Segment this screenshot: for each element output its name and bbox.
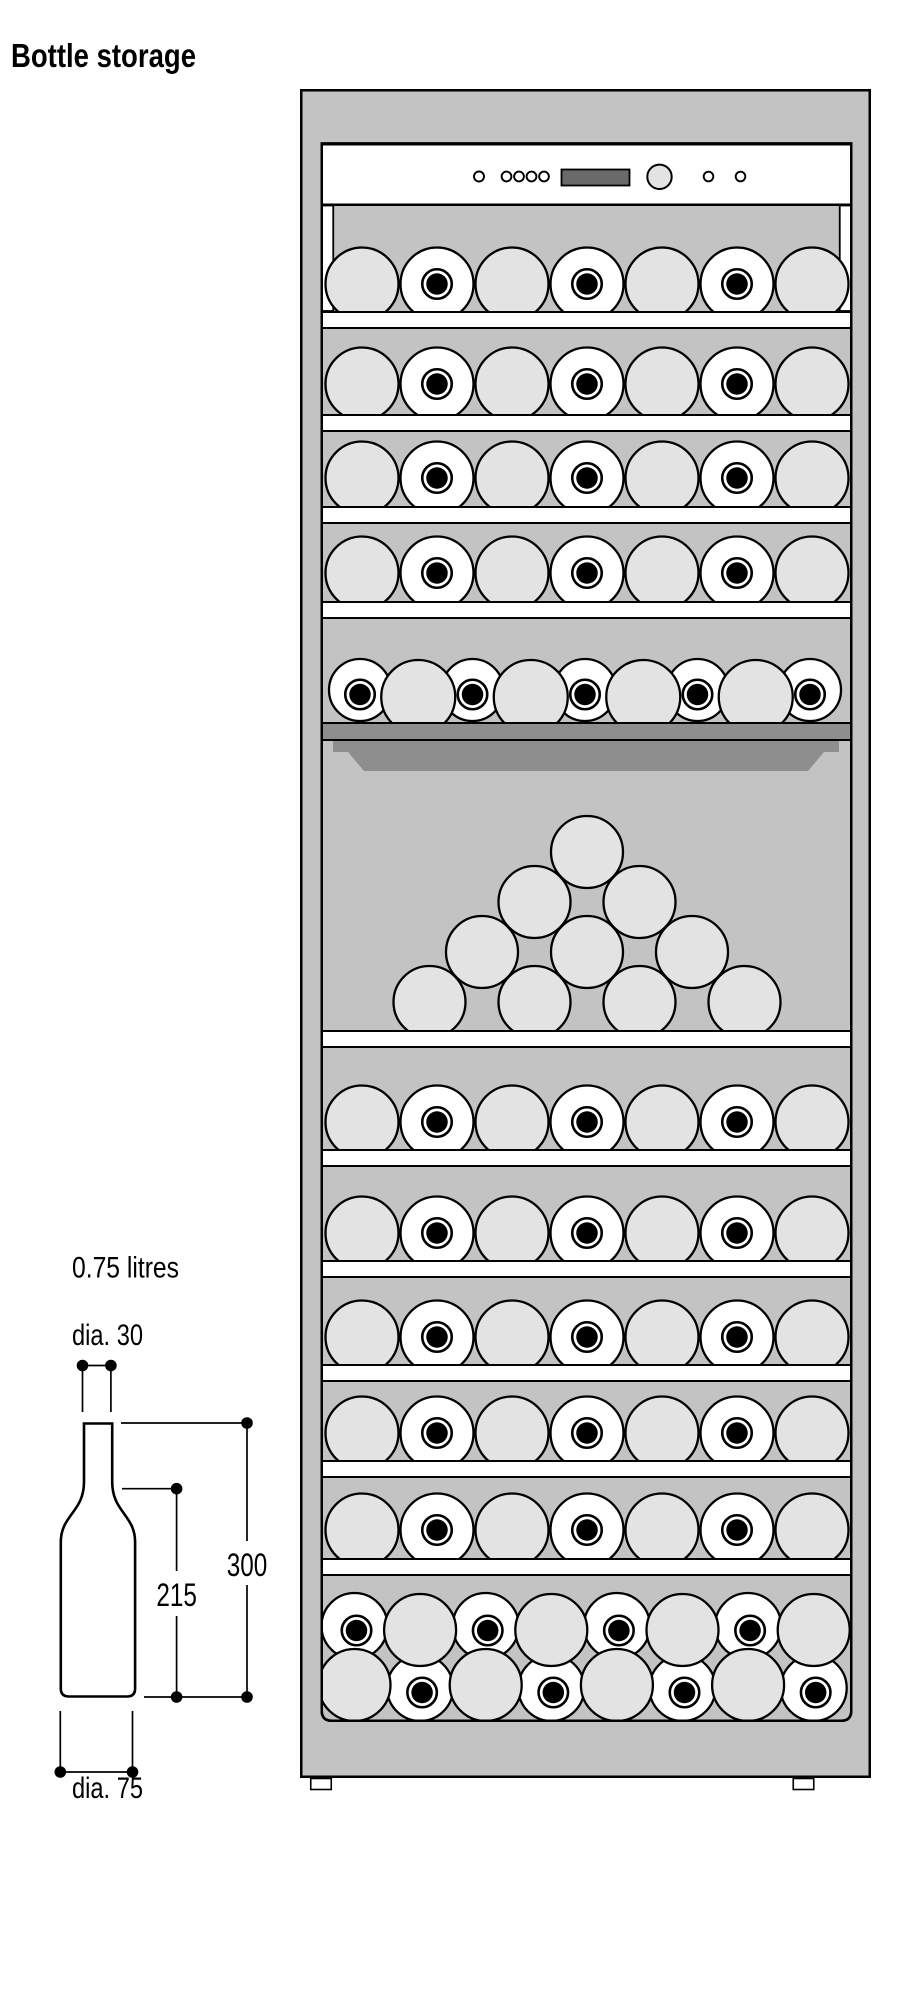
svg-text:dia. 30: dia. 30 — [72, 1319, 143, 1352]
svg-text:215: 215 — [156, 1577, 197, 1613]
svg-text:dia. 75: dia. 75 — [72, 1772, 143, 1805]
svg-text:Bottle storage: Bottle storage — [11, 37, 196, 74]
svg-text:0.75 litres: 0.75 litres — [72, 1252, 179, 1285]
svg-text:300: 300 — [227, 1547, 268, 1583]
